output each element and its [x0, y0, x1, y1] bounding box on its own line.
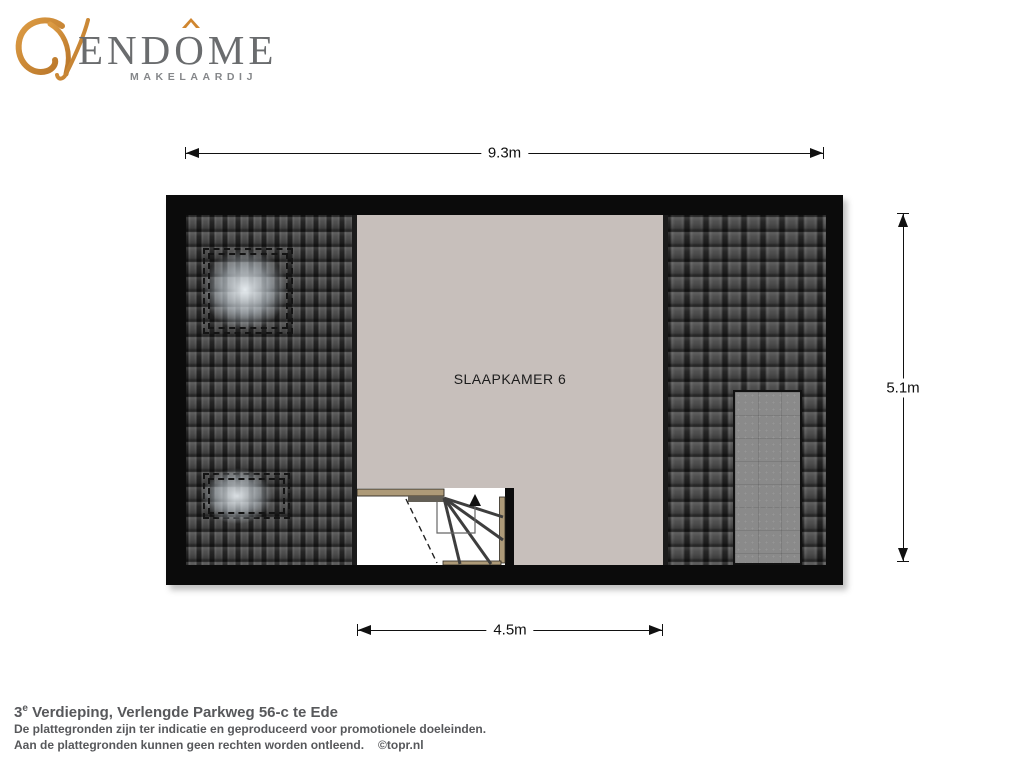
- page-title: 3e Verdieping, Verlengde Parkweg 56-c te…: [14, 699, 486, 722]
- credit: ©topr.nl: [378, 738, 424, 752]
- dim-label-top: 9.3m: [481, 144, 528, 163]
- handrail-right: [500, 497, 506, 563]
- skylight-frame: [208, 478, 285, 514]
- caption: 3e Verdieping, Verlengde Parkweg 56-c te…: [14, 699, 486, 753]
- dimension-bottom: 4.5m: [357, 622, 663, 638]
- vendome-logo: ENDOME MAKELAARDIJ: [12, 8, 272, 92]
- top-tread: [408, 496, 444, 502]
- room-label: SLAAPKAMER 6: [357, 371, 663, 387]
- stair-wall: [505, 488, 514, 565]
- disclaimer-line-1: De plattegronden zijn ter indicatie en g…: [14, 722, 486, 738]
- arrowhead-left-icon: [358, 625, 371, 635]
- skylight-1: [203, 248, 293, 334]
- dim-tick: [662, 624, 663, 636]
- skylight-frame: [208, 253, 288, 329]
- floorplan-page: ENDOME MAKELAARDIJ SLAAPKAMER 6: [0, 0, 1024, 768]
- arrowhead-right-icon: [649, 625, 662, 635]
- title-text: Verdieping, Verlengde Parkweg 56-c te Ed…: [28, 704, 338, 721]
- arrowhead-down-icon: [898, 548, 908, 561]
- staircase: [357, 488, 514, 565]
- skylight-2: [203, 473, 290, 519]
- arrowhead-left-icon: [186, 148, 199, 158]
- dim-label-bottom: 4.5m: [486, 621, 533, 640]
- arrowhead-up-icon: [898, 214, 908, 227]
- brand-wordmark: ENDOME: [78, 26, 277, 74]
- dim-label-right: 5.1m: [879, 378, 926, 397]
- staircase-drawing: [357, 488, 514, 565]
- floorplan: SLAAPKAMER 6: [166, 195, 843, 585]
- brand-letter-o: O: [174, 27, 208, 73]
- dimension-top: 9.3m: [185, 145, 824, 161]
- dormer: [733, 390, 802, 565]
- brand-subtitle: MAKELAARDIJ: [130, 71, 257, 83]
- handrail-bottom: [443, 561, 501, 565]
- circumflex-accent-icon: [182, 18, 200, 28]
- arrowhead-right-icon: [810, 148, 823, 158]
- brand-text-2: ME: [208, 27, 278, 73]
- dimension-right: 5.1m: [895, 213, 911, 562]
- dim-tick: [897, 561, 909, 562]
- handrail-top: [357, 489, 444, 496]
- dim-tick: [823, 147, 824, 159]
- brand-text-1: END: [78, 27, 174, 73]
- disclaimer-line-2: Aan de plattegronden kunnen geen rechten…: [14, 738, 486, 754]
